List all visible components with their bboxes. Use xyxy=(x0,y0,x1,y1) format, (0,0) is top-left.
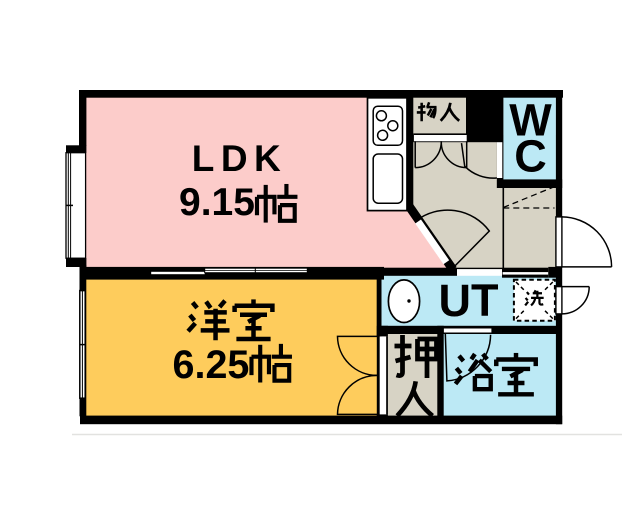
svg-text:9.15: 9.15 xyxy=(179,181,255,224)
svg-text:6.25: 6.25 xyxy=(173,343,250,387)
svg-text:LDK: LDK xyxy=(192,138,288,179)
svg-text:UT: UT xyxy=(439,275,499,326)
svg-text:C: C xyxy=(514,131,547,182)
